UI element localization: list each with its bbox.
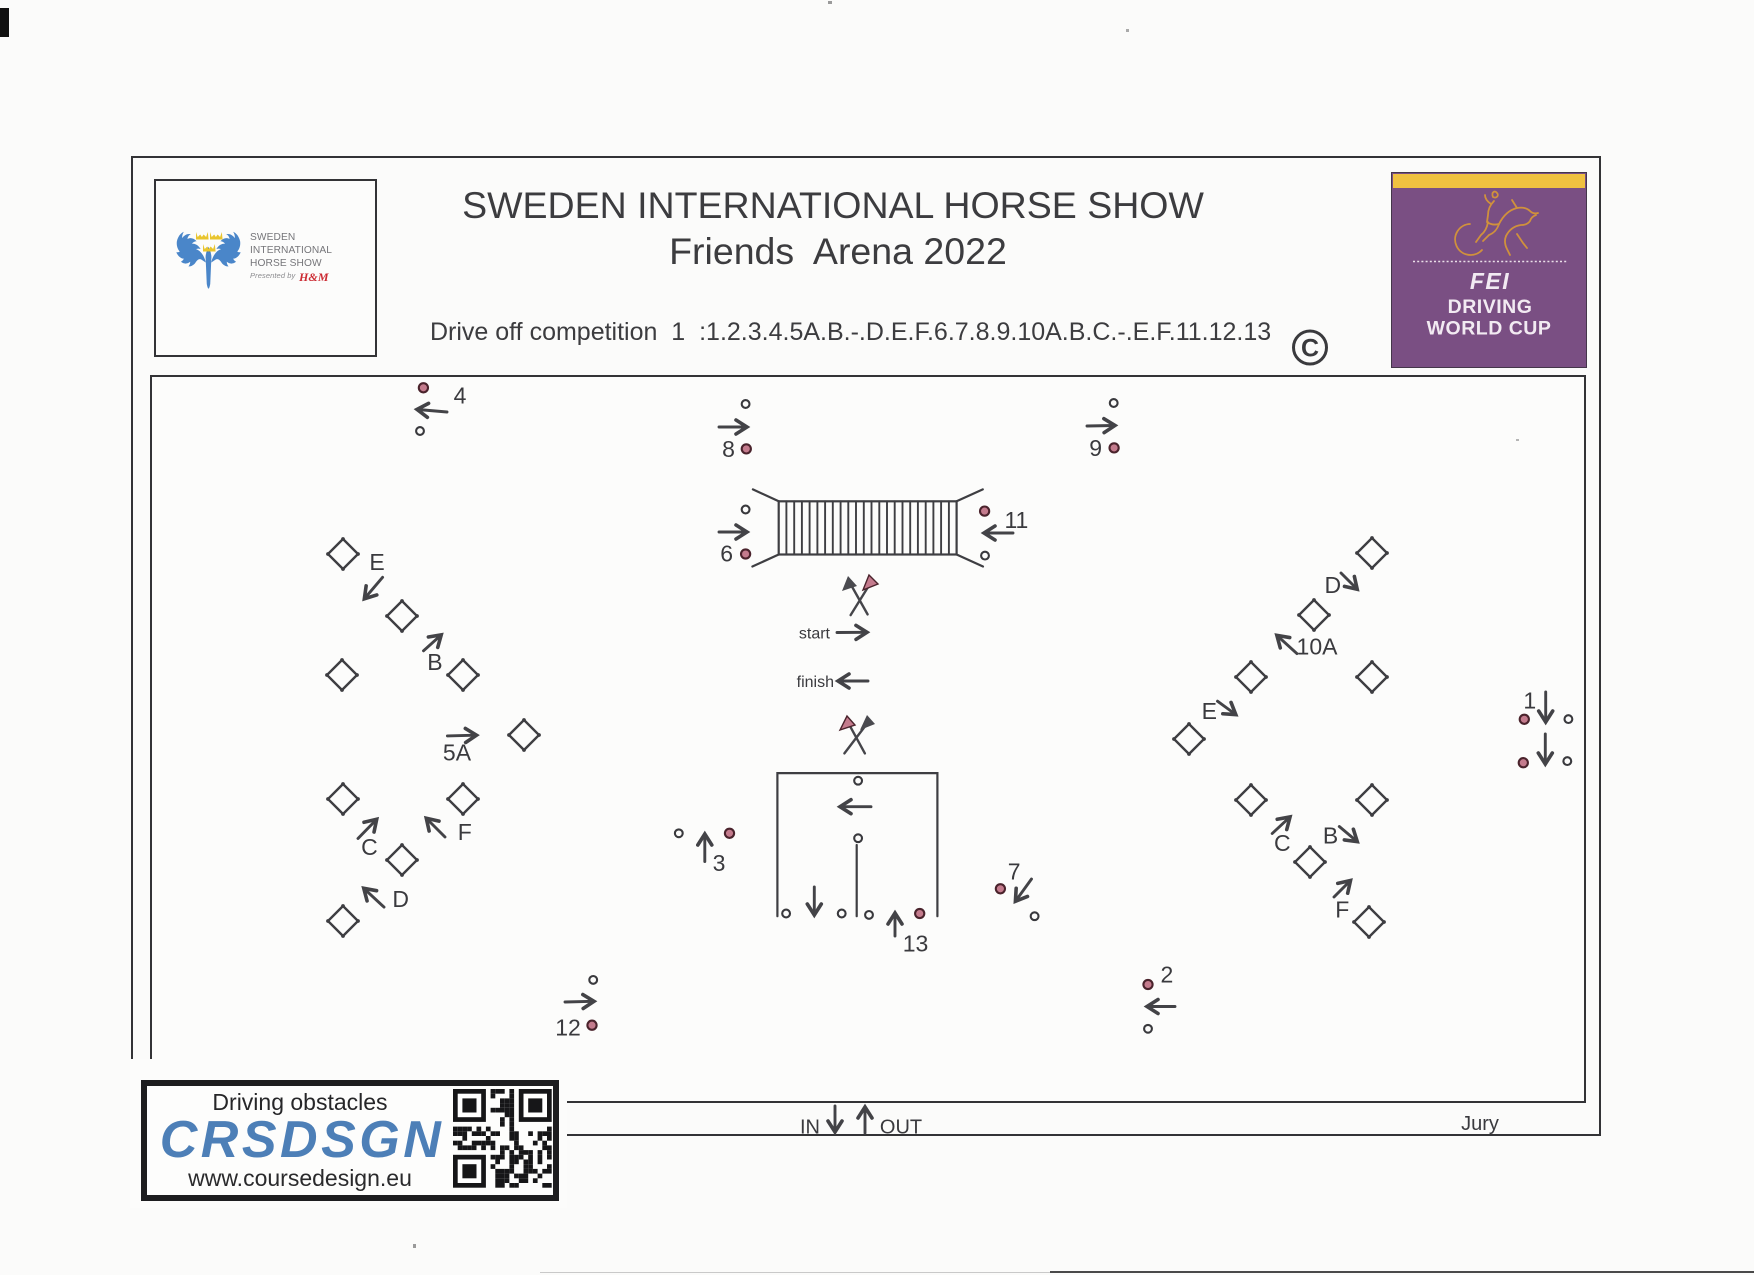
svg-text:OUT: OUT bbox=[880, 1117, 922, 1139]
svg-text:4: 4 bbox=[454, 383, 467, 409]
svg-text:D: D bbox=[1324, 572, 1341, 598]
svg-text:C: C bbox=[1274, 830, 1291, 856]
svg-text:start: start bbox=[799, 626, 831, 643]
svg-text:11: 11 bbox=[1004, 507, 1028, 533]
svg-text:B: B bbox=[427, 649, 442, 675]
svg-text:10A: 10A bbox=[1297, 634, 1339, 660]
svg-text:E: E bbox=[369, 549, 384, 575]
svg-text:7: 7 bbox=[1008, 859, 1021, 885]
svg-text:13: 13 bbox=[903, 931, 929, 957]
svg-text:F: F bbox=[458, 819, 472, 845]
svg-text:2: 2 bbox=[1161, 962, 1174, 988]
svg-text:1: 1 bbox=[1523, 688, 1536, 714]
svg-text:12: 12 bbox=[555, 1015, 581, 1041]
svg-text:B: B bbox=[1323, 823, 1338, 849]
svg-text:C: C bbox=[1301, 335, 1319, 363]
svg-text:6: 6 bbox=[720, 541, 733, 567]
svg-text:E: E bbox=[1202, 698, 1217, 724]
svg-text:IN: IN bbox=[800, 1117, 820, 1139]
svg-text:F: F bbox=[1335, 897, 1349, 923]
svg-text:Jury: Jury bbox=[1461, 1113, 1499, 1135]
svg-text:C: C bbox=[361, 834, 378, 860]
svg-text:3: 3 bbox=[713, 850, 726, 876]
svg-text:finish: finish bbox=[797, 674, 834, 691]
svg-text:9: 9 bbox=[1089, 435, 1102, 461]
svg-text:5A: 5A bbox=[443, 740, 472, 766]
svg-text:8: 8 bbox=[722, 436, 735, 462]
svg-text:D: D bbox=[392, 886, 409, 912]
